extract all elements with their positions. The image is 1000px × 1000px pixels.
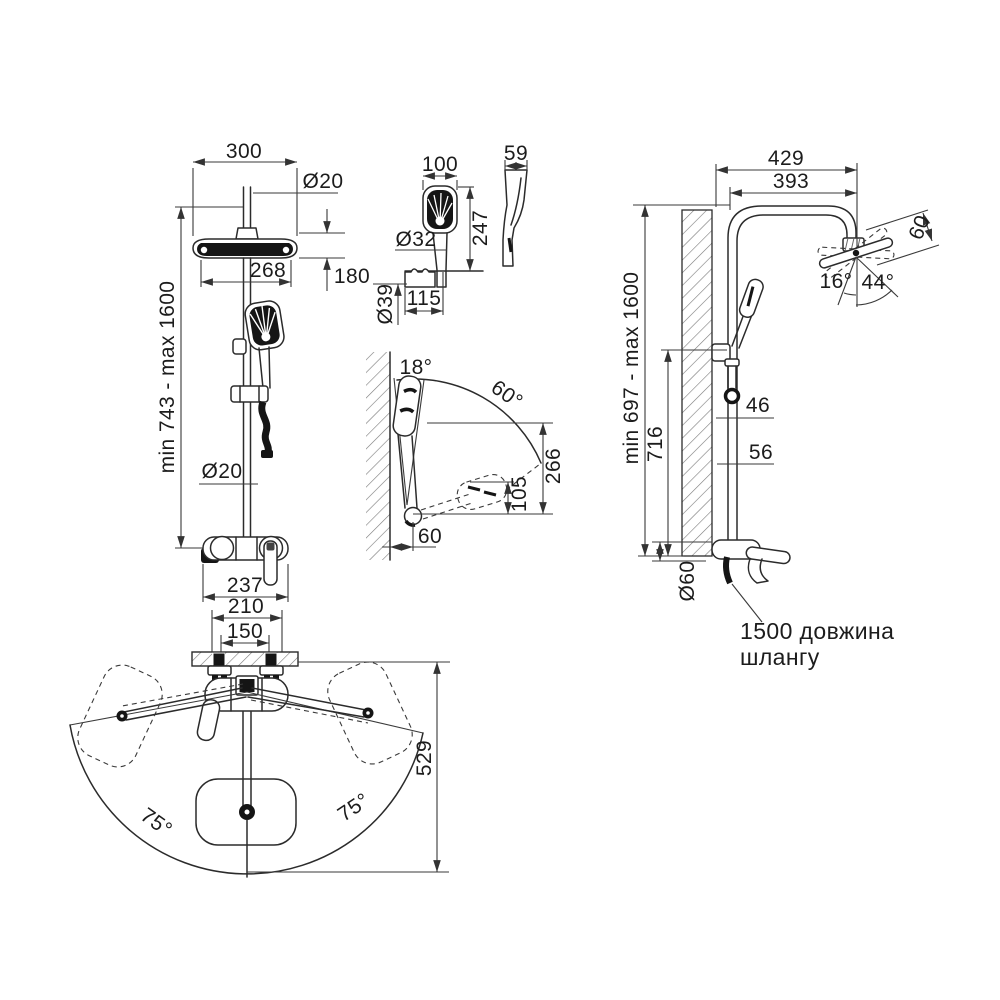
dim-18deg: 18° <box>400 356 433 379</box>
dim-100: 100 <box>422 153 458 176</box>
dim-115: 115 <box>407 287 442 310</box>
side-view: 429 393 60 16° 44° min 697 - max 1600 71… <box>620 147 939 670</box>
wall-section <box>682 210 712 556</box>
front-view: 300 Ø20 268 180 min 743 - max 1600 Ø20 2… <box>156 140 370 602</box>
dim-dia32: Ø32 <box>396 228 437 251</box>
dim-105: 105 <box>508 476 531 512</box>
hose-front <box>262 402 269 452</box>
slider-ball <box>726 390 739 403</box>
dim-247: 247 <box>469 210 492 246</box>
dim-300: 300 <box>226 140 262 163</box>
hand-shower-side-detail <box>503 170 527 266</box>
dim-210: 210 <box>228 595 264 618</box>
dim-46: 46 <box>746 394 770 417</box>
mixer-side <box>712 540 791 583</box>
wall-plan <box>192 652 298 666</box>
hand-shower-detail-view: 100 59 247 Ø32 Ø39 115 <box>373 142 528 325</box>
hose-length-note-line1: 1500 довжина <box>740 618 894 644</box>
dim-75deg-right: 75° <box>334 789 374 827</box>
dim-16deg: 16° <box>820 270 853 293</box>
dim-266: 266 <box>542 448 565 484</box>
wall-holder <box>405 269 435 287</box>
hand-shower-side <box>712 277 765 402</box>
drawing-canvas: 300 Ø20 268 180 min 743 - max 1600 Ø20 2… <box>0 0 1000 1000</box>
dim-height-range-front: min 743 - max 1600 <box>156 281 179 474</box>
dim-60-offset: 60 <box>418 525 442 548</box>
dim-59: 59 <box>504 142 528 165</box>
hand-shower-up-position <box>392 375 422 508</box>
dim-44deg: 44° <box>862 271 895 294</box>
hand-shower-front <box>231 299 286 458</box>
dim-268: 268 <box>250 259 286 282</box>
hose-length-note-line2: шлангу <box>740 644 820 670</box>
dim-429: 429 <box>768 147 804 170</box>
dim-237: 237 <box>227 574 263 597</box>
front-view-dimensions <box>175 162 345 602</box>
dim-716: 716 <box>644 426 667 462</box>
dim-393: 393 <box>773 170 809 193</box>
dim-56: 56 <box>749 441 773 464</box>
top-view: 210 150 529 75° 75° <box>70 595 450 877</box>
dim-height-range-side: min 697 - max 1600 <box>620 272 643 465</box>
dim-529: 529 <box>413 740 436 776</box>
dim-dia20-mid: Ø20 <box>202 460 243 483</box>
overhead-shower-front <box>193 239 297 258</box>
dim-180: 180 <box>334 265 370 288</box>
dim-dia60: Ø60 <box>676 561 699 602</box>
dim-dia39: Ø39 <box>374 284 397 325</box>
dim-75deg-left: 75° <box>136 804 176 842</box>
shower-system-technical-drawing: 300 Ø20 268 180 min 743 - max 1600 Ø20 2… <box>0 0 1000 1000</box>
hose-drop <box>726 557 730 583</box>
dim-60deg: 60° <box>487 376 527 414</box>
riser-pipe-top <box>244 187 251 228</box>
wall-hatch <box>366 352 390 560</box>
dim-dia20-top: Ø20 <box>303 170 344 193</box>
angle-diagram: 18° 60° 266 105 60 <box>366 352 565 560</box>
dim-150: 150 <box>227 620 263 643</box>
